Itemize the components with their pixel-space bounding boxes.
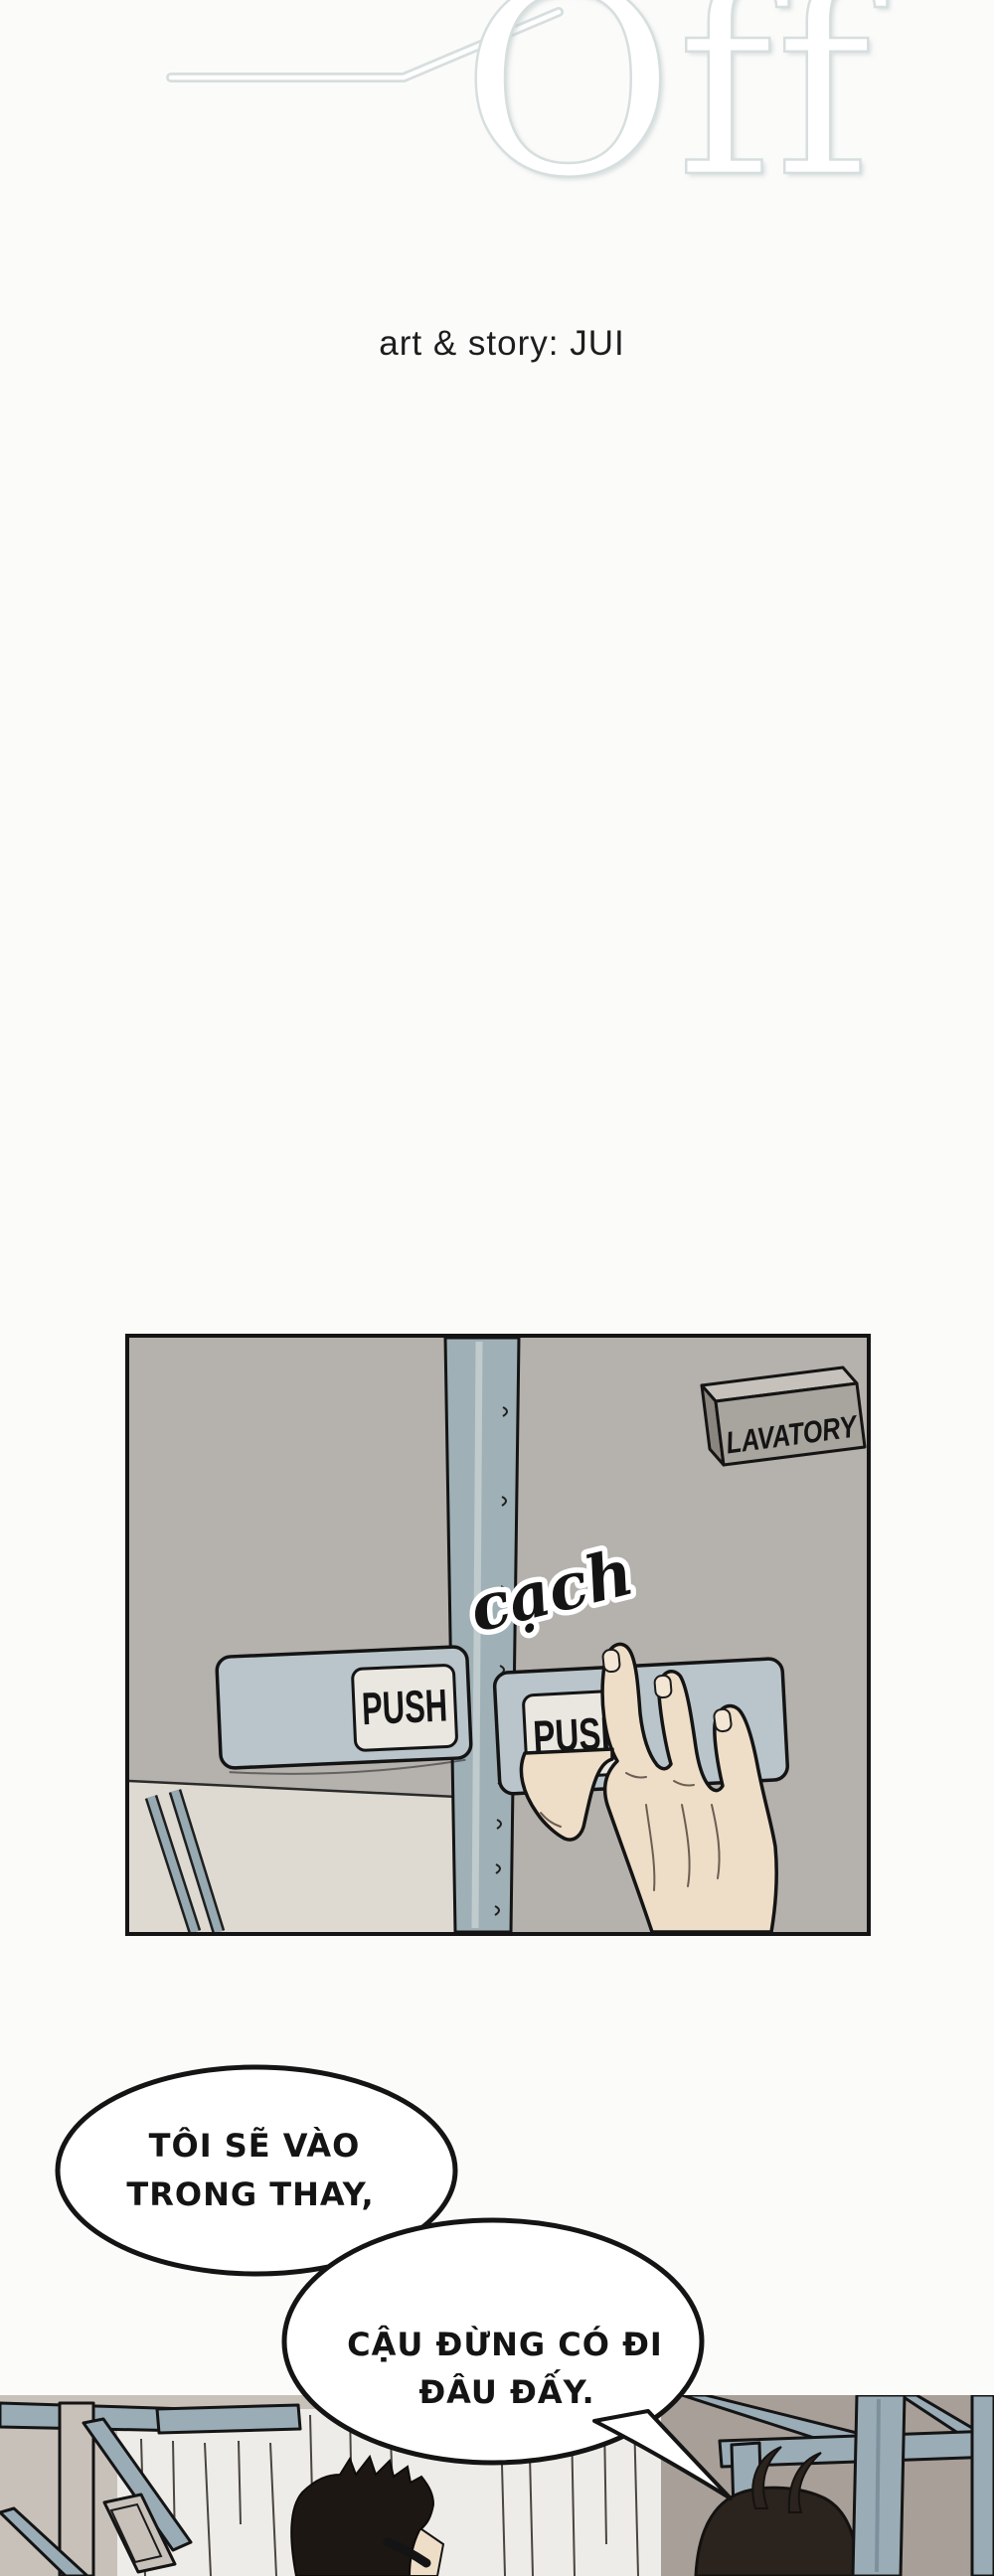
panel-lavatory-art: LAVATORY PUSH PUSH cạch (129, 1338, 867, 1932)
bubble-2-line-1: CẬU ĐỪNG CÓ ĐI (347, 2325, 663, 2363)
panel-lavatory-door: LAVATORY PUSH PUSH cạch (125, 1334, 871, 1936)
bubble-2-line-2: ĐÂU ĐẤY. (418, 2369, 594, 2411)
bubble-1-line-2: TRONG THAY, (126, 2175, 374, 2213)
series-title: Off (461, 0, 874, 214)
push-plate-left: PUSH (217, 1647, 472, 1778)
push-label-left: PUSH (361, 1679, 448, 1734)
bubble-2-tail (594, 2411, 731, 2498)
comic-page: Off art & story: JUI (0, 0, 994, 2576)
credit-line: art & story: JUI (0, 324, 994, 364)
bubble-1-line-1: TÔI SẼ VÀO (149, 2126, 361, 2165)
speech-bubbles: TÔI SẼ VÀO TRONG THAY, CẬU ĐỪNG CÓ ĐI ĐÂ… (0, 2027, 994, 2544)
lavatory-sign: LAVATORY (702, 1368, 865, 1465)
